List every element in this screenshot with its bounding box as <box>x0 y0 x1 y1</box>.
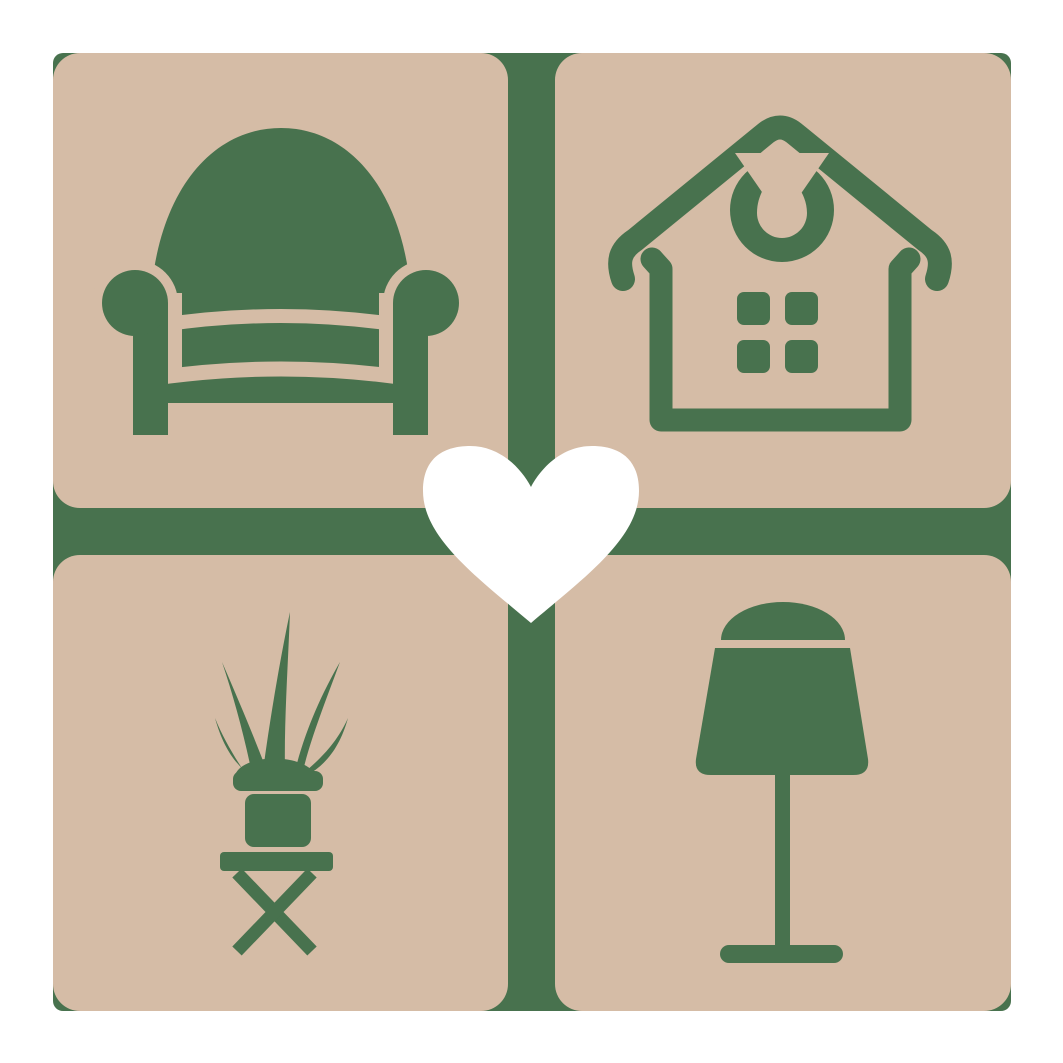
logo-graphic <box>0 0 1063 1063</box>
tile-potted-plant <box>53 555 508 1011</box>
lamp-shade <box>696 648 868 775</box>
window-pane <box>785 340 818 373</box>
tile-table-lamp <box>555 555 1011 1011</box>
lamp-stem <box>775 775 790 947</box>
pot-rim <box>233 771 323 791</box>
window-pane <box>737 292 770 325</box>
stool-top <box>220 852 333 871</box>
tile-armchair <box>53 53 508 508</box>
window-pane <box>785 292 818 325</box>
armchair-arm-left <box>102 270 168 336</box>
armchair-side-gap-left <box>168 293 182 373</box>
pot-body <box>245 794 311 847</box>
logo-canvas <box>0 0 1063 1063</box>
armchair-arm-right <box>393 270 459 336</box>
armchair-side-gap-right <box>379 293 393 373</box>
tile-house <box>555 53 1011 508</box>
window-pane <box>737 340 770 373</box>
lamp-base <box>720 945 843 963</box>
